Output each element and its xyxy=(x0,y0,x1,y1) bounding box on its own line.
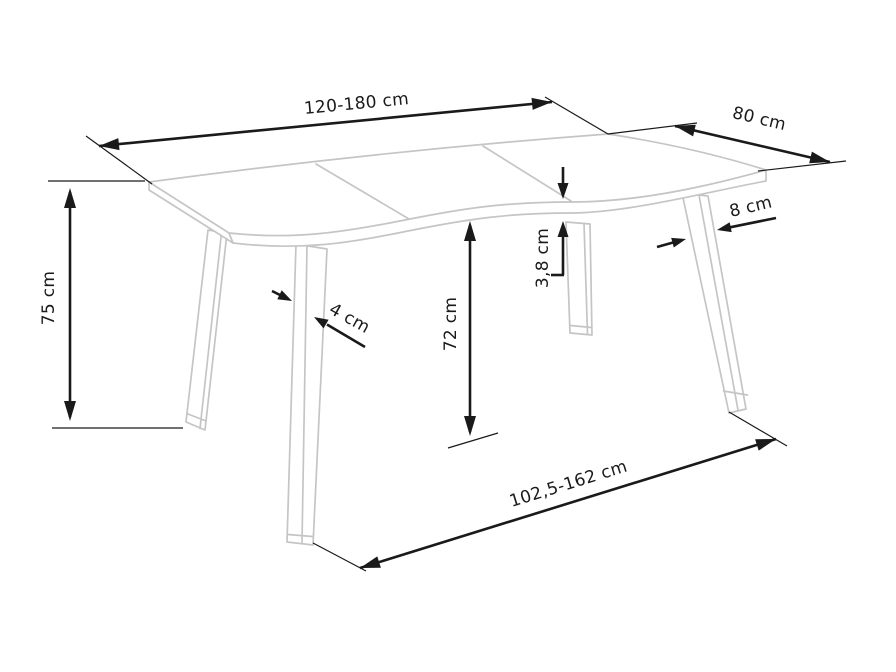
table-leg-front-left xyxy=(287,244,327,545)
label-table-depth: 80 cm xyxy=(730,103,788,135)
table-top xyxy=(149,134,766,246)
dimension-table-height: 75 cm xyxy=(39,181,183,428)
label-underside-clearance: 72 cm xyxy=(441,297,461,351)
dimension-diagram-canvas: 120-180 cm 80 cm 75 cm 4 cm 72 cm xyxy=(0,0,896,672)
table-leg-rear-right xyxy=(566,222,592,335)
label-table-height: 75 cm xyxy=(39,271,59,325)
label-table-length: 120-180 cm xyxy=(303,89,410,119)
label-leg-width: 8 cm xyxy=(727,192,774,222)
label-leg-thickness: 4 cm xyxy=(326,299,374,337)
dimension-underside-clearance: 72 cm xyxy=(441,221,498,448)
dimension-leg-span: 102,5-162 cm xyxy=(313,412,787,571)
table-dimension-diagram: 120-180 cm 80 cm 75 cm 4 cm 72 cm xyxy=(0,0,896,672)
label-top-thickness: 3,8 cm xyxy=(533,228,553,288)
table-leg-rear-left xyxy=(186,230,227,430)
